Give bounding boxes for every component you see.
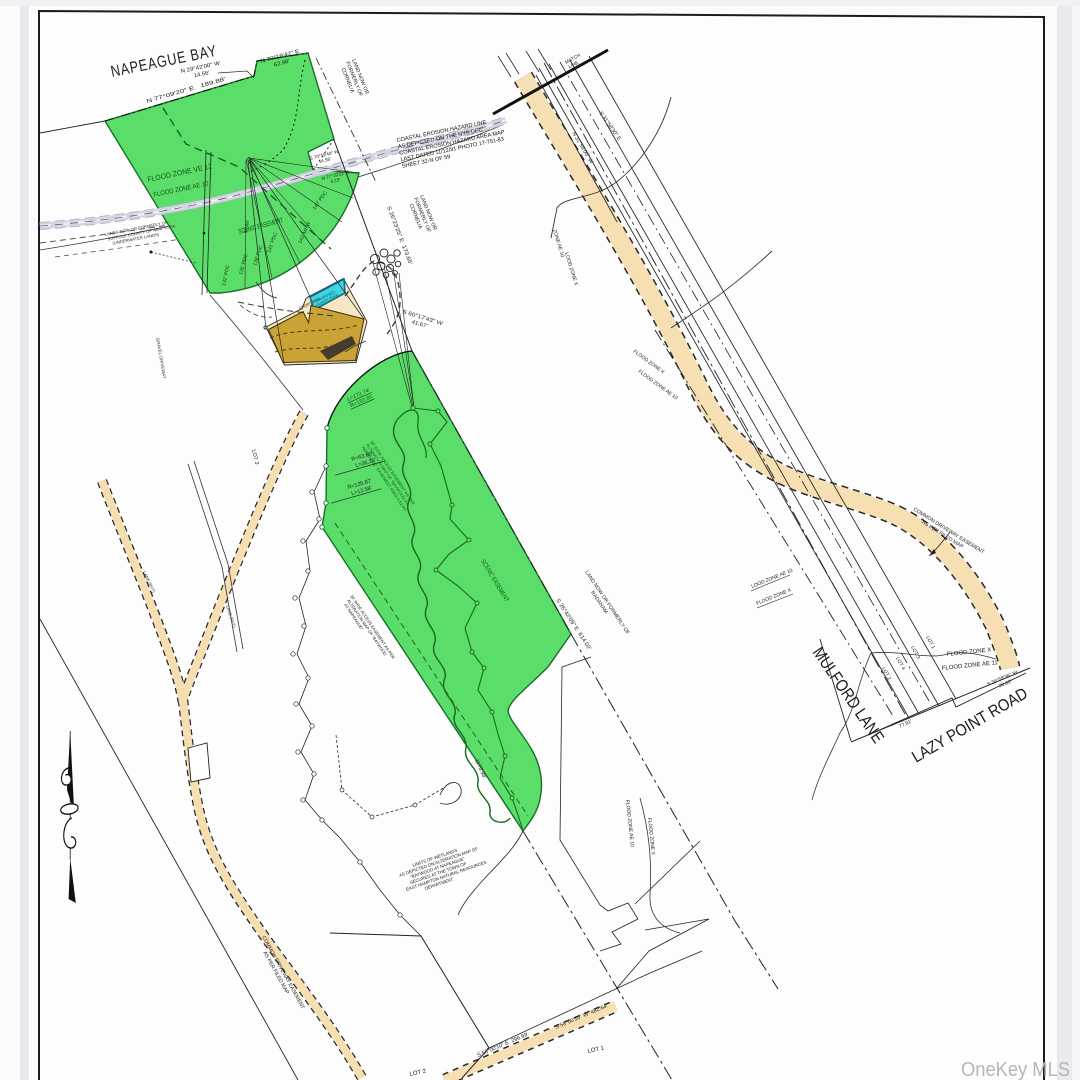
svg-text:OneKey MLS: OneKey MLS <box>961 1059 1070 1080</box>
